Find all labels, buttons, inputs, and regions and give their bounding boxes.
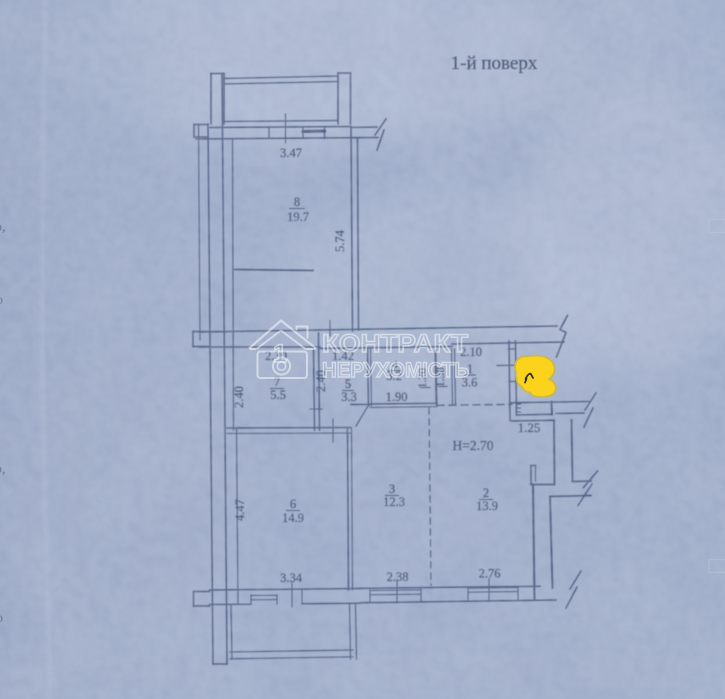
svg-text:КОНТРАКТ: КОНТРАКТ <box>322 330 468 358</box>
svg-text:НЕРУХОМІСТЬ: НЕРУХОМІСТЬ <box>322 359 469 382</box>
